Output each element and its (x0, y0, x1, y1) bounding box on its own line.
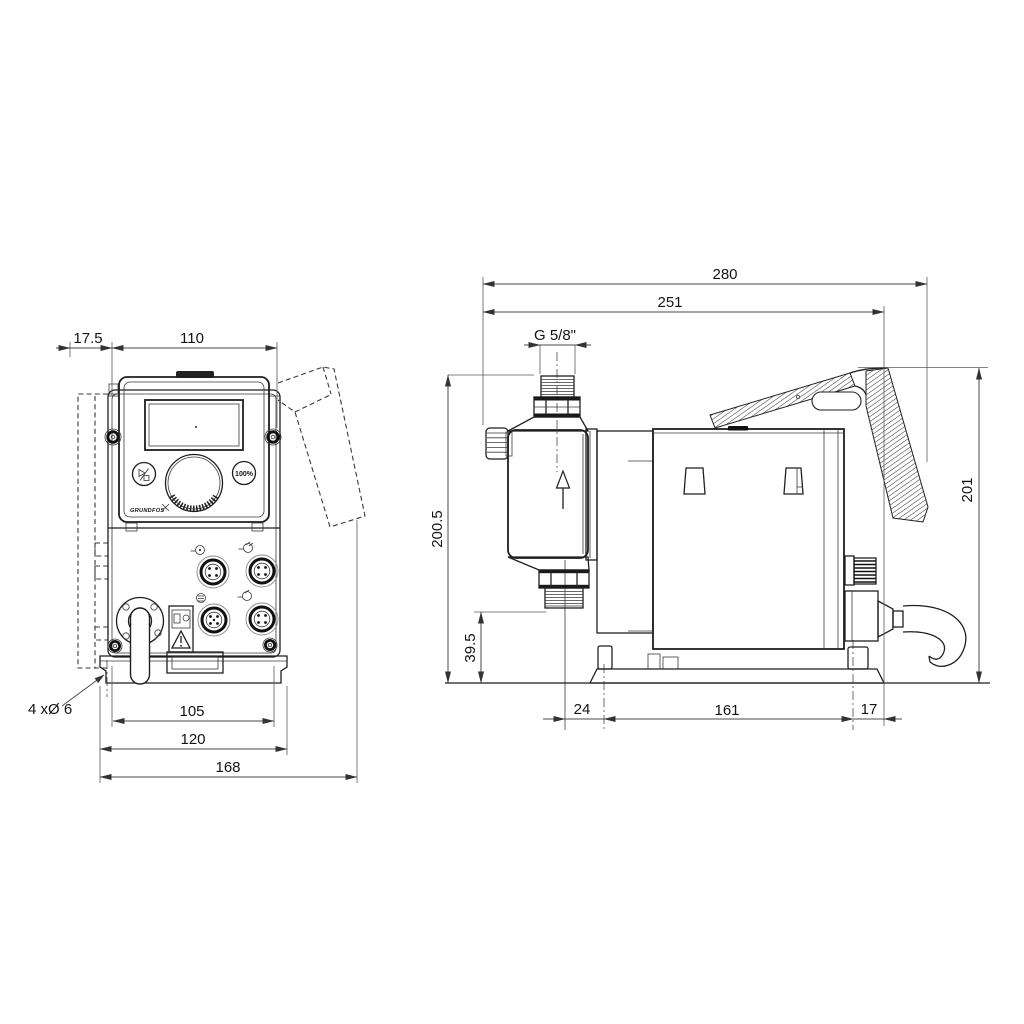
dim-200-5: 200.5 (429, 510, 446, 548)
warning-triangle-icon (172, 631, 190, 648)
flow-direction-arrow (557, 471, 570, 509)
cable-flange (117, 598, 164, 685)
dim-280: 280 (712, 266, 737, 283)
capacity-100-label: 100% (235, 471, 254, 478)
display-cursor-dot (195, 426, 197, 428)
dim-105: 105 (179, 703, 204, 720)
start-stop-button[interactable] (133, 463, 156, 486)
warning-label (169, 606, 193, 652)
base-plate-side (590, 646, 884, 683)
socket[interactable] (198, 604, 230, 636)
dim-161: 161 (714, 702, 739, 719)
brand-logo: GRUNDFOS (130, 504, 169, 514)
front-view: 100% GRUNDFOS (28, 330, 365, 783)
dim-251: 251 (657, 294, 682, 311)
dim-201: 201 (959, 477, 976, 502)
inlet-valve (539, 570, 589, 608)
mounting-bracket-section (710, 368, 928, 522)
rear-vent-screw (845, 556, 876, 585)
dim-120: 120 (180, 731, 205, 748)
display (145, 400, 243, 450)
drawing-sheet: 100% GRUNDFOS (0, 0, 1024, 1024)
dim-39-5: 39.5 (462, 633, 479, 662)
socket[interactable] (197, 556, 229, 588)
pump-head (508, 430, 589, 570)
technical-drawing: 100% GRUNDFOS (0, 0, 1024, 1024)
dim-24: 24 (574, 701, 591, 718)
socket[interactable] (246, 555, 278, 587)
dim-thread: G 5/8" (534, 327, 576, 344)
socket[interactable] (246, 603, 278, 635)
wall-plate-hidden-outline (78, 394, 108, 668)
brand-logo-text: GRUNDFOS (130, 508, 164, 514)
start-stop-icon (139, 469, 149, 481)
note-mounting-holes: 4 xØ 6 (28, 701, 72, 718)
dim-17: 17 (861, 701, 878, 718)
capacity-100-button[interactable]: 100% (233, 462, 256, 485)
signal-sockets (191, 542, 279, 636)
cable-gland (845, 591, 966, 666)
bracket-hidden-outline (278, 367, 365, 527)
dim-17-5: 17.5 (73, 330, 102, 347)
bracket-hook-slot (812, 392, 861, 410)
drive-housing (586, 426, 844, 649)
side-view: 280 251 G 5/8" 200.5 39.5 201 (429, 266, 990, 730)
mains-cable-front (131, 608, 150, 684)
front-dimensions: 17.5 110 105 120 168 4 xØ 6 (28, 330, 357, 783)
dim-168: 168 (215, 759, 240, 776)
outlet-valve (508, 376, 588, 431)
click-wheel[interactable] (166, 455, 223, 512)
base-plate-front (100, 652, 287, 697)
dim-110: 110 (180, 330, 204, 347)
